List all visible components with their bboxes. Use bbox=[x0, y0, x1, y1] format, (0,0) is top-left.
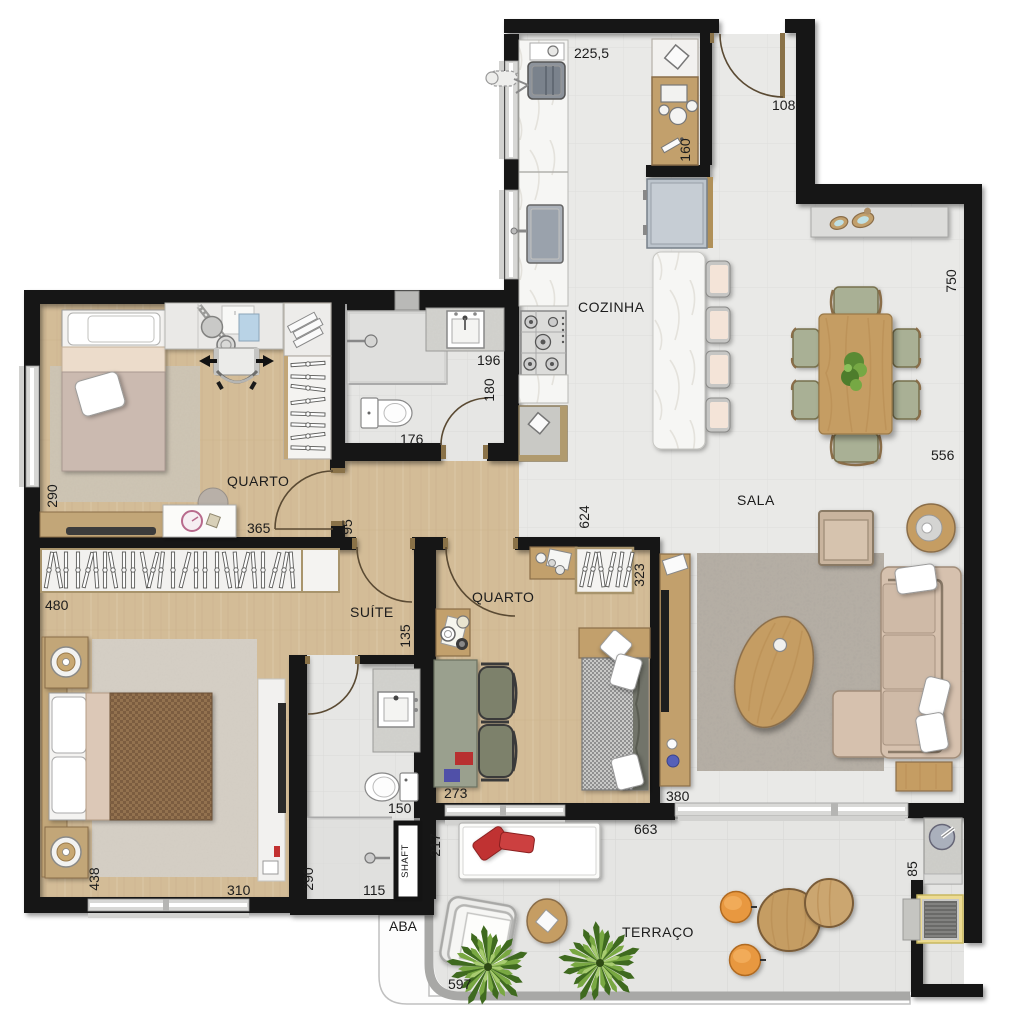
svg-text:ABA: ABA bbox=[389, 918, 418, 934]
svg-text:225,5: 225,5 bbox=[574, 45, 609, 61]
svg-text:380: 380 bbox=[666, 788, 690, 804]
svg-text:663: 663 bbox=[634, 821, 658, 837]
svg-text:85: 85 bbox=[904, 861, 920, 877]
svg-text:108: 108 bbox=[772, 97, 796, 113]
svg-text:624: 624 bbox=[576, 505, 592, 529]
svg-text:QUARTO: QUARTO bbox=[472, 589, 534, 605]
svg-text:135: 135 bbox=[397, 624, 413, 648]
svg-text:480: 480 bbox=[45, 597, 69, 613]
svg-text:160: 160 bbox=[677, 138, 693, 162]
svg-text:SHAFT: SHAFT bbox=[400, 844, 411, 878]
svg-text:273: 273 bbox=[444, 785, 468, 801]
svg-text:115: 115 bbox=[363, 882, 386, 898]
svg-text:323: 323 bbox=[631, 563, 647, 587]
svg-text:556: 556 bbox=[931, 447, 955, 463]
svg-text:290: 290 bbox=[300, 867, 316, 891]
svg-text:196: 196 bbox=[477, 352, 501, 368]
svg-text:438: 438 bbox=[86, 867, 102, 891]
svg-text:SALA: SALA bbox=[737, 492, 775, 508]
svg-text:597: 597 bbox=[448, 976, 472, 992]
svg-text:TERRAÇO: TERRAÇO bbox=[622, 924, 694, 940]
svg-text:310: 310 bbox=[227, 882, 251, 898]
svg-text:180: 180 bbox=[481, 378, 497, 402]
svg-text:95: 95 bbox=[339, 519, 355, 535]
svg-text:QUARTO: QUARTO bbox=[227, 473, 289, 489]
svg-text:750: 750 bbox=[943, 269, 959, 293]
svg-text:150: 150 bbox=[388, 800, 412, 816]
svg-text:COZINHA: COZINHA bbox=[578, 299, 645, 315]
svg-text:176: 176 bbox=[400, 431, 424, 447]
svg-text:217: 217 bbox=[427, 833, 443, 857]
svg-text:SUÍTE: SUÍTE bbox=[350, 604, 394, 620]
svg-text:365: 365 bbox=[247, 520, 271, 536]
svg-text:290: 290 bbox=[44, 484, 60, 508]
